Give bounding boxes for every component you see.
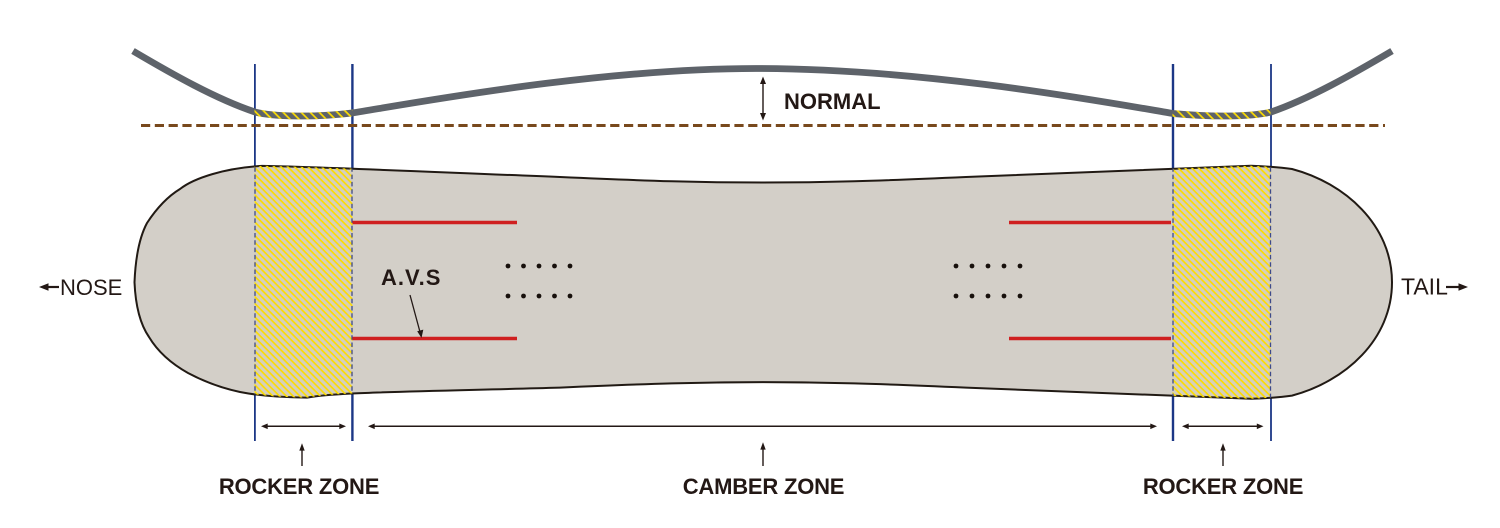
svg-text:NORMAL: NORMAL [784,89,881,114]
svg-text:CAMBER ZONE: CAMBER ZONE [683,474,845,499]
svg-text:ROCKER ZONE: ROCKER ZONE [1143,474,1303,499]
svg-text:A.V.S: A.V.S [381,265,441,290]
svg-text:ROCKER ZONE: ROCKER ZONE [219,474,379,499]
svg-text:TAIL: TAIL [1401,274,1448,300]
svg-text:NOSE: NOSE [60,275,122,300]
